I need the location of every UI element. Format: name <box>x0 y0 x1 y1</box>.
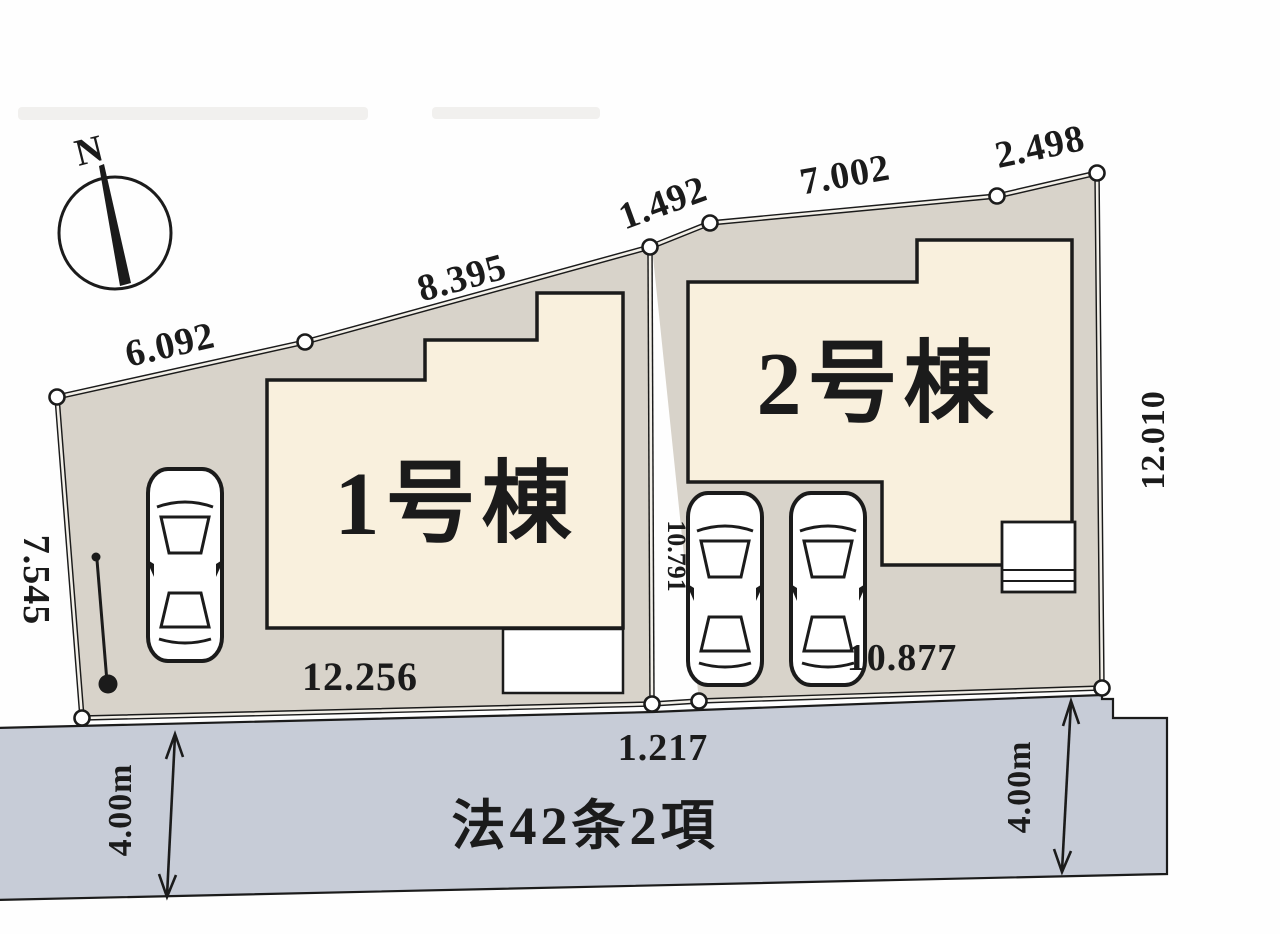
dim-frontage-gap: 1.217 <box>618 729 709 767</box>
compass-icon <box>59 164 171 289</box>
dim-lot1-frontage: 12.256 <box>302 657 418 697</box>
dim-lot2-frontage: 10.877 <box>847 639 958 677</box>
boundary-vertex <box>703 216 718 231</box>
site-plan-canvas: N 6.092 8.395 1.492 7.002 2.498 7.545 12… <box>0 0 1280 934</box>
road-designation-label: 法42条2項 <box>452 799 719 853</box>
building1-approach <box>503 629 623 693</box>
road-width-right-label: 4.00m <box>1003 741 1037 834</box>
dim-lot2-inner: 10.791 <box>663 520 689 592</box>
boundary-vertex <box>692 694 707 709</box>
boundary-vertex <box>1095 681 1110 696</box>
dim-right-edge: 12.010 <box>1137 390 1171 490</box>
boundary-vertex <box>50 390 65 405</box>
building2-balcony <box>1002 522 1075 592</box>
boundary-vertex <box>75 711 90 726</box>
building2-label: 2号棟 <box>757 340 1000 430</box>
boundary-vertex <box>645 697 660 712</box>
boundary-vertex <box>990 189 1005 204</box>
boundary-vertex <box>298 335 313 350</box>
dim-left-edge: 7.545 <box>17 535 55 626</box>
building1-label: 1号棟 <box>335 460 578 550</box>
site-plan-drawing <box>0 0 1280 934</box>
boundary-vertex <box>643 240 658 255</box>
road-width-left-label: 4.00m <box>104 764 138 857</box>
car-icon <box>146 469 224 661</box>
car-icon <box>686 493 764 685</box>
compass-needle <box>99 164 131 286</box>
boundary-vertex <box>1090 166 1105 181</box>
